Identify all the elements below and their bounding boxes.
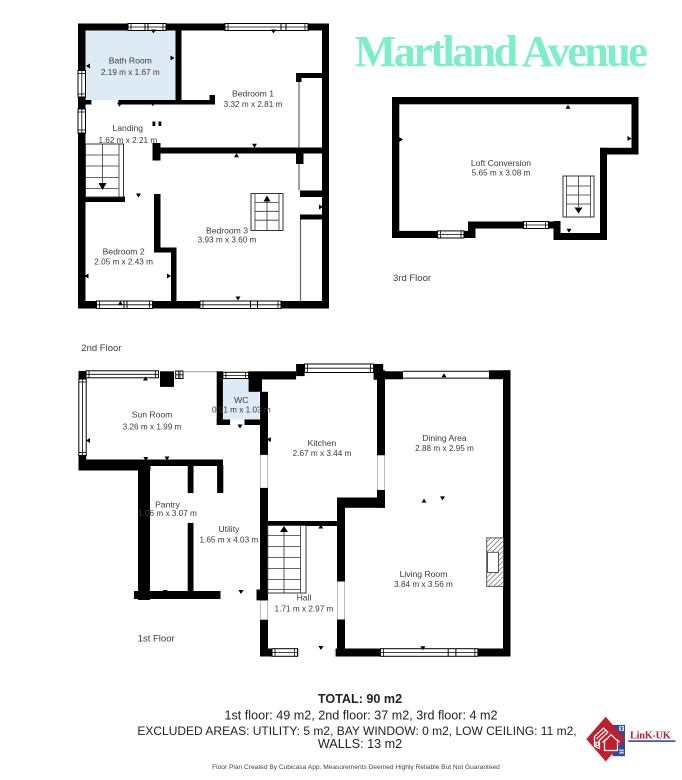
svg-text:Bath Room: Bath Room	[109, 55, 152, 65]
svg-text:3.26 m x 1.99 m: 3.26 m x 1.99 m	[123, 422, 182, 431]
svg-text:Bedroom 3: Bedroom 3	[206, 225, 248, 235]
svg-text:3rd Floor: 3rd Floor	[393, 273, 431, 284]
svg-text:3.93 m x 3.60 m: 3.93 m x 3.60 m	[198, 236, 257, 245]
svg-text:1.65 m x 4.03 m: 1.65 m x 4.03 m	[200, 536, 259, 545]
svg-text:3.84 m x 3.56 m: 3.84 m x 3.56 m	[394, 580, 453, 589]
svg-text:Bedroom 2: Bedroom 2	[103, 247, 145, 257]
svg-text:TOTAL: 90 m2: TOTAL: 90 m2	[318, 692, 402, 706]
svg-text:1.62 m x 2.21 m: 1.62 m x 2.21 m	[98, 136, 157, 145]
svg-text:Living Room: Living Room	[400, 569, 448, 579]
svg-text:WC: WC	[234, 395, 248, 405]
svg-text:LinK-UK: LinK-UK	[630, 731, 671, 742]
svg-text:2.67 m x 3.44 m: 2.67 m x 3.44 m	[293, 449, 352, 458]
svg-text:Bedroom 1: Bedroom 1	[232, 89, 274, 99]
svg-text:0.91 m x 1.03 m: 0.91 m x 1.03 m	[212, 405, 271, 414]
svg-text:1st floor: 49 m2, 2nd floor: 3: 1st floor: 49 m2, 2nd floor: 37 m2, 3rd …	[225, 708, 498, 722]
svg-text:1st Floor: 1st Floor	[138, 634, 175, 645]
svg-text:2.05 m x 2.43 m: 2.05 m x 2.43 m	[94, 258, 153, 267]
svg-text:Kitchen: Kitchen	[308, 438, 337, 448]
svg-text:WALLS: 13 m2: WALLS: 13 m2	[318, 737, 402, 751]
svg-text:1.71 m x 2.97 m: 1.71 m x 2.97 m	[275, 605, 334, 614]
svg-text:EXCLUDED AREAS: UTILITY: 5 m2,: EXCLUDED AREAS: UTILITY: 5 m2, BAY WINDO…	[137, 724, 576, 738]
svg-text:Dining Area: Dining Area	[422, 433, 467, 443]
svg-text:Loft Conversion: Loft Conversion	[471, 158, 531, 168]
svg-text:Landing: Landing	[113, 123, 144, 133]
svg-text:3.32 m x 2.81 m: 3.32 m x 2.81 m	[224, 100, 283, 109]
svg-text:Hall: Hall	[297, 593, 312, 603]
svg-text:Floor Plan Created By Cubicasa: Floor Plan Created By Cubicasa App. Meas…	[212, 764, 500, 771]
svg-text:2.19 m x 1.67 m: 2.19 m x 1.67 m	[101, 68, 160, 77]
svg-text:Pantry: Pantry	[155, 500, 181, 510]
svg-text:2nd Floor: 2nd Floor	[81, 343, 121, 354]
svg-text:Martland Avenue: Martland Avenue	[355, 27, 647, 76]
svg-text:5.65 m x 3.08 m: 5.65 m x 3.08 m	[472, 169, 531, 178]
svg-text:1.06 m x 3.07 m: 1.06 m x 3.07 m	[138, 509, 197, 518]
svg-text:Sun Room: Sun Room	[132, 410, 173, 420]
svg-text:2.88 m x 2.95 m: 2.88 m x 2.95 m	[415, 444, 474, 453]
svg-text:Utility: Utility	[218, 524, 240, 534]
